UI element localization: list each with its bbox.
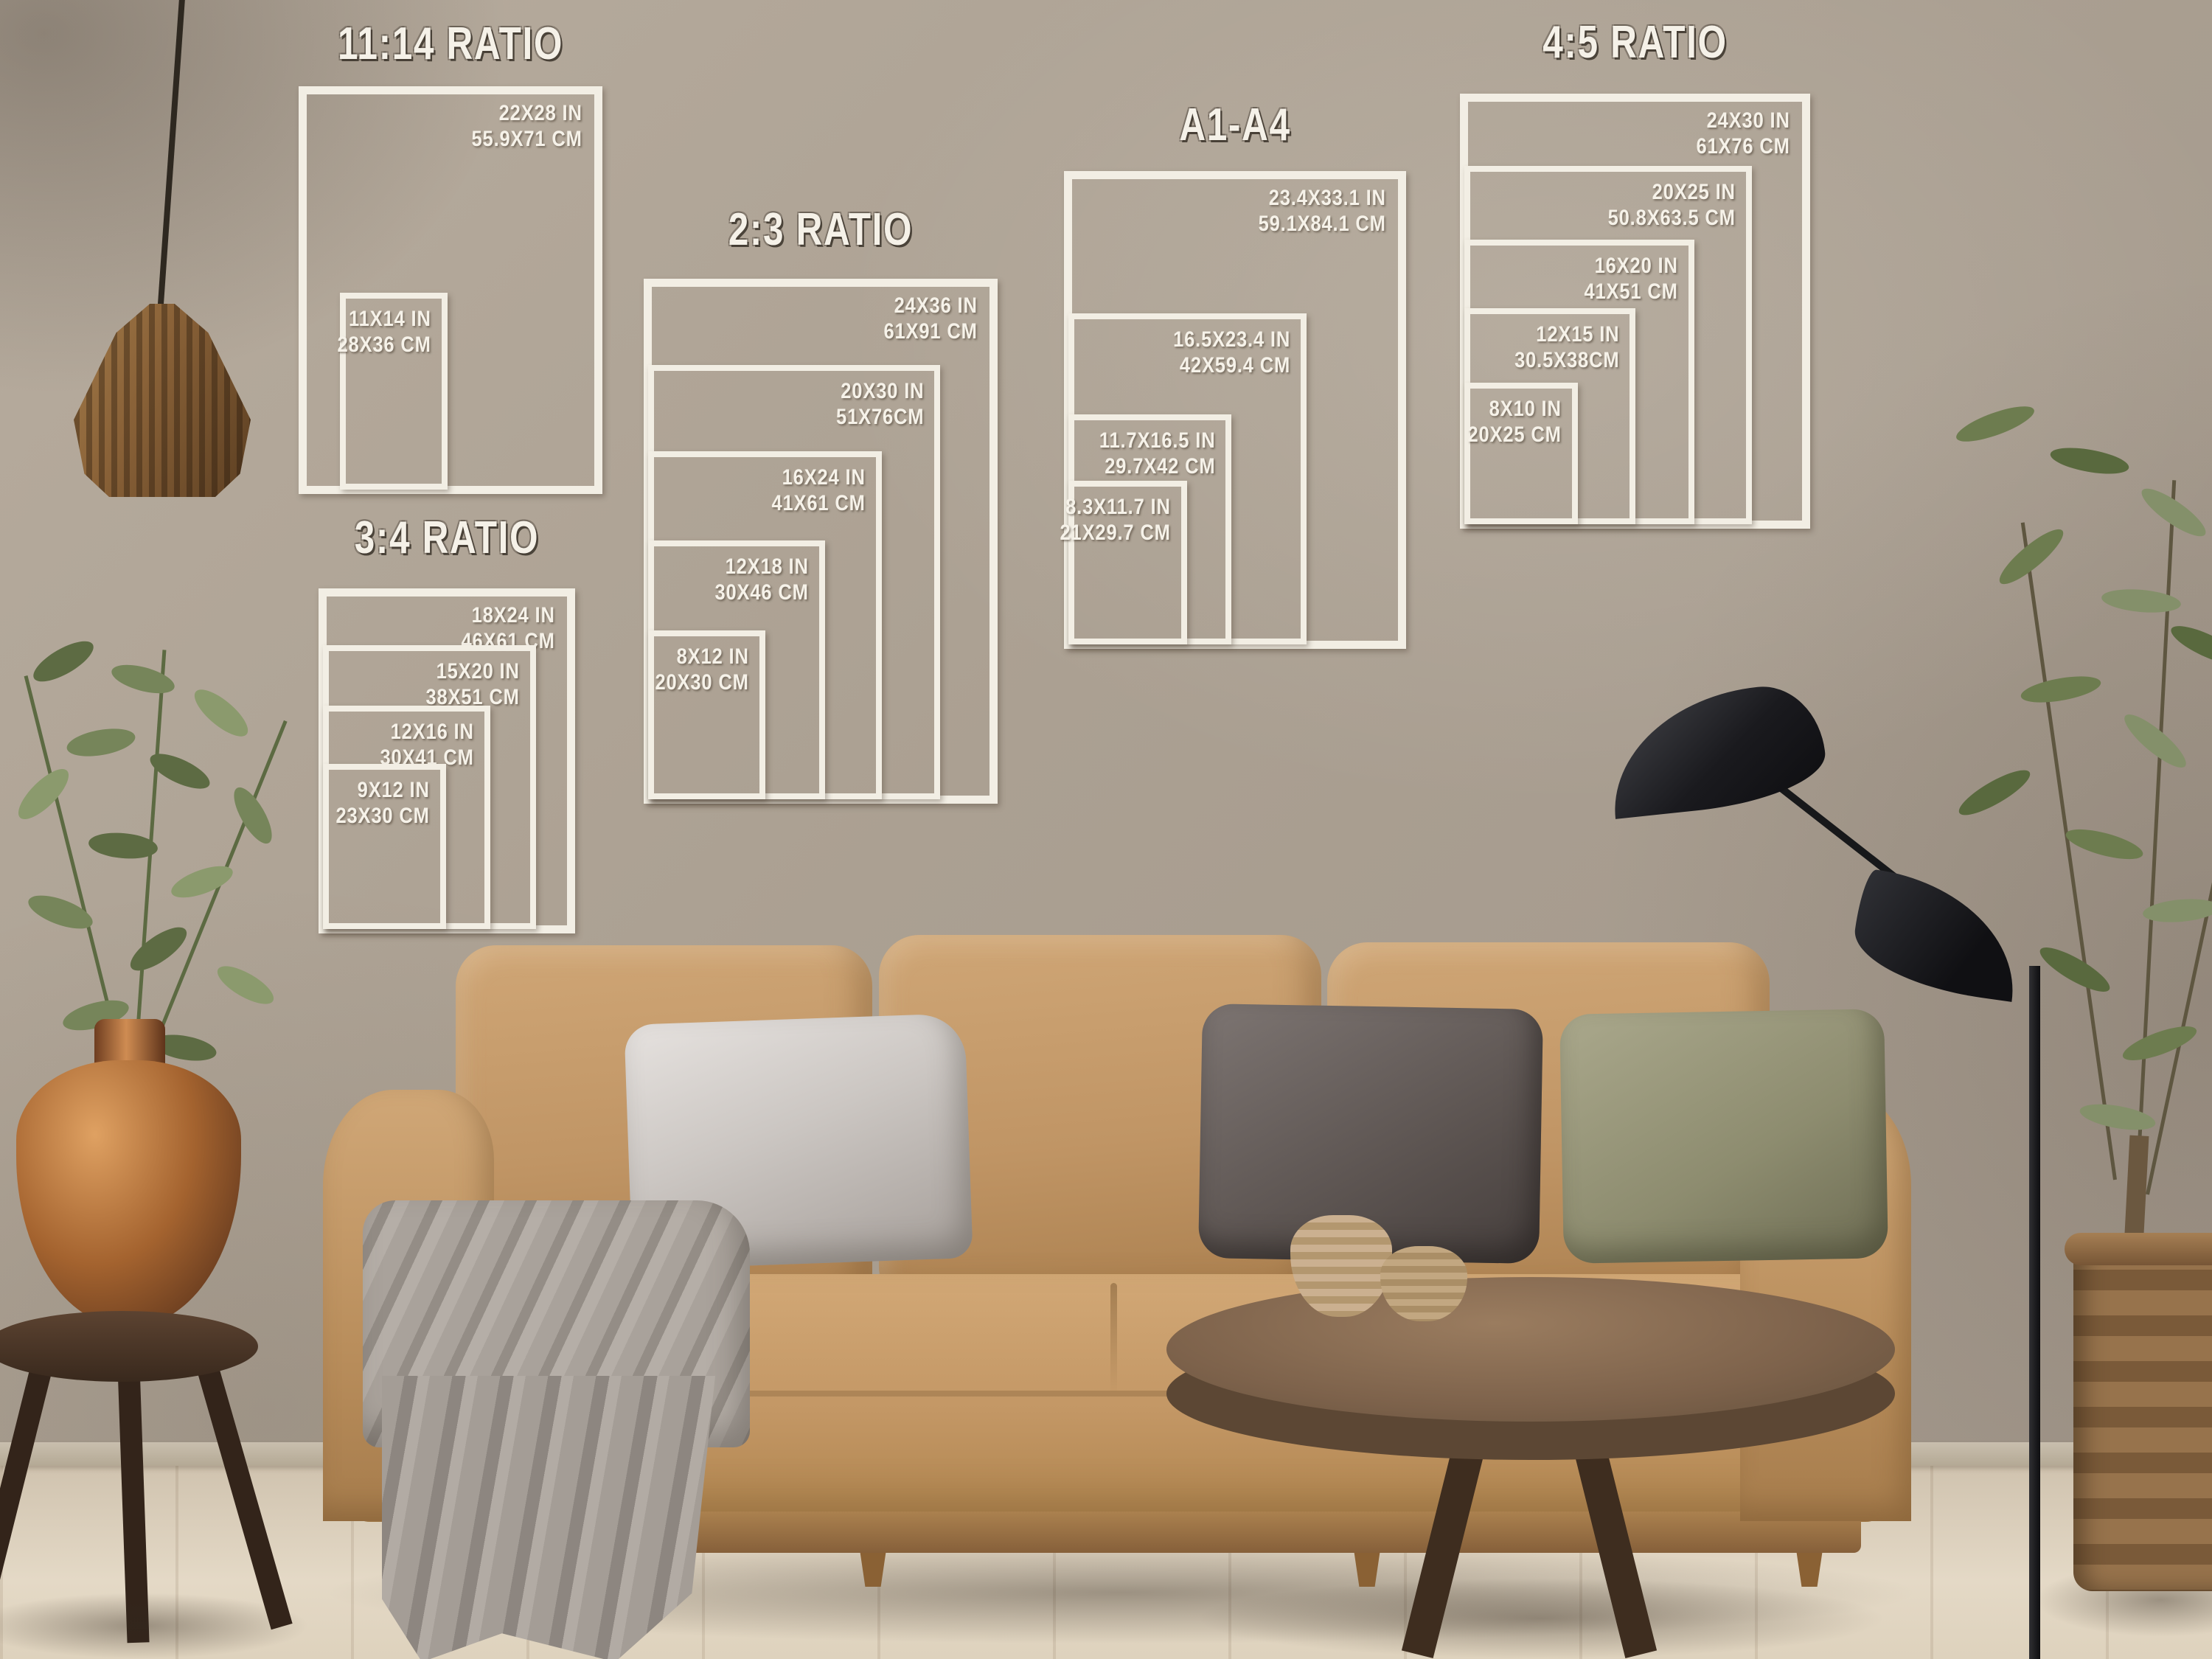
ratio-group-2-3: 24X36 IN 61X91 CM 20X30 IN 51X76CM 16X24… (644, 279, 998, 804)
size-rect-8x10: 8X10 IN 20X25 CM (1464, 383, 1578, 524)
ratio-title-a1-a4: A1-A4 (1098, 99, 1371, 151)
size-label-a2: 16.5X23.4 IN 42X59.4 CM (1173, 327, 1290, 378)
ratio-title-3-4: 3:4 RATIO (344, 512, 549, 564)
size-label-9x12: 9X12 IN 23X30 CM (336, 777, 430, 829)
living-room-scene: 11:14 RATIO 22X28 IN 55.9X71 CM 11X14 IN… (0, 0, 2212, 1659)
pillow-olive (1559, 1009, 1888, 1264)
ratio-group-3-4: 18X24 IN 46X61 CM 15X20 IN 38X51 CM 12X1… (319, 588, 575, 933)
size-label-8x12: 8X12 IN 20X30 CM (655, 644, 749, 695)
woven-basket-planter (2073, 1245, 2212, 1591)
sofa-seat-split (1110, 1283, 1117, 1394)
size-label-16x20: 16X20 IN 41X51 CM (1585, 253, 1678, 305)
size-label-11x14: 11X14 IN 28X36 CM (338, 306, 431, 358)
coffee-table-top (1166, 1277, 1895, 1422)
ratio-title-2-3: 2:3 RATIO (679, 204, 962, 256)
size-rect-8x12: 8X12 IN 20X30 CM (648, 630, 765, 799)
ratio-title-4-5: 4:5 RATIO (1495, 16, 1775, 69)
size-label-12x16: 12X16 IN 30X41 CM (380, 719, 474, 771)
ratio-group-11-14: 22X28 IN 55.9X71 CM 11X14 IN 28X36 CM (299, 86, 602, 494)
size-rect-a4: 8.3X11.7 IN 21X29.7 CM (1068, 481, 1187, 644)
woven-basket-rim (2065, 1233, 2212, 1265)
size-label-15x20: 15X20 IN 38X51 CM (426, 658, 520, 710)
size-label-a1: 23.4X33.1 IN 59.1X84.1 CM (1259, 185, 1386, 237)
throw-blanket-drape (382, 1376, 715, 1659)
ratio-title-11-14: 11:14 RATIO (329, 18, 572, 70)
floor-lamp-pole (2029, 966, 2040, 1659)
ratio-group-4-5: 24X30 IN 61X76 CM 20X25 IN 50.8X63.5 CM … (1460, 94, 1810, 529)
size-label-8x10: 8X10 IN 20X25 CM (1468, 396, 1562, 448)
size-label-a4: 8.3X11.7 IN 21X29.7 CM (1060, 494, 1171, 546)
size-label-24x30: 24X30 IN 61X76 CM (1697, 108, 1790, 159)
size-label-12x18: 12X18 IN 30X46 CM (715, 554, 809, 605)
size-label-16x24: 16X24 IN 41X61 CM (772, 465, 866, 516)
table-shadow (1194, 1578, 1888, 1659)
size-rect-11x14: 11X14 IN 28X36 CM (340, 293, 448, 490)
size-label-12x15: 12X15 IN 30.5X38CM (1514, 321, 1619, 373)
ratio-group-a1-a4: 23.4X33.1 IN 59.1X84.1 CM 16.5X23.4 IN 4… (1064, 171, 1406, 649)
size-label-a3: 11.7X16.5 IN 29.7X42 CM (1099, 428, 1215, 479)
size-label-20x25: 20X25 IN 50.8X63.5 CM (1608, 179, 1736, 231)
size-rect-9x12: 9X12 IN 23X30 CM (323, 764, 446, 929)
size-label-20x30: 20X30 IN 51X76CM (836, 378, 924, 430)
size-label-22x28: 22X28 IN 55.9X71 CM (472, 100, 582, 152)
size-label-24x36: 24X36 IN 61X91 CM (884, 293, 978, 344)
